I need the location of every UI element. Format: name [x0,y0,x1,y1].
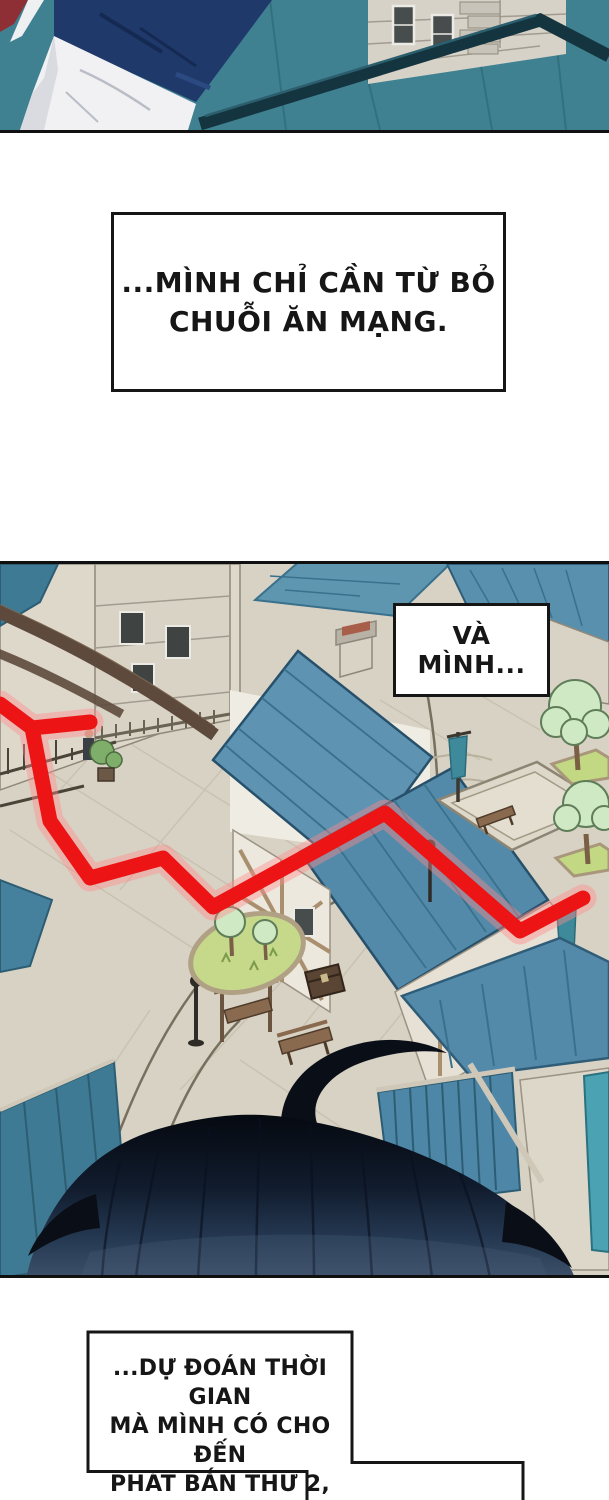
speech-box-1-line-2: CHUỖI ĂN MẠNG. [169,302,448,341]
speech-box-2: ...DỰ ĐOÁN THỜI GIAN MÀ MÌNH CÓ CHO ĐẾN … [98,1354,342,1499]
speech-box-2-line-3: PHÁT BẮN THỨ 2, [98,1470,342,1499]
speech-box-1: ...MÌNH CHỈ CẦN TỪ BỎ CHUỖI ĂN MẠNG. [111,212,506,392]
comic-page: ...MÌNH CHỈ CẦN TỪ BỎ CHUỖI ĂN MẠNG. [0,0,609,1500]
speech-box-va-minh: VÀ MÌNH... [393,603,550,697]
chimney [336,621,376,677]
rooftop-closeup-illustration [0,0,609,130]
panel-top-art [0,0,609,133]
speech-box-1-line-1: ...MÌNH CHỈ CẦN TỪ BỎ [121,263,495,302]
speech-box-va-line-1: VÀ MÌNH... [396,621,547,679]
speech-box-2-line-2: MÀ MÌNH CÓ CHO ĐẾN [98,1412,342,1470]
speech-box-2-line-1: ...DỰ ĐOÁN THỜI GIAN [98,1354,342,1412]
